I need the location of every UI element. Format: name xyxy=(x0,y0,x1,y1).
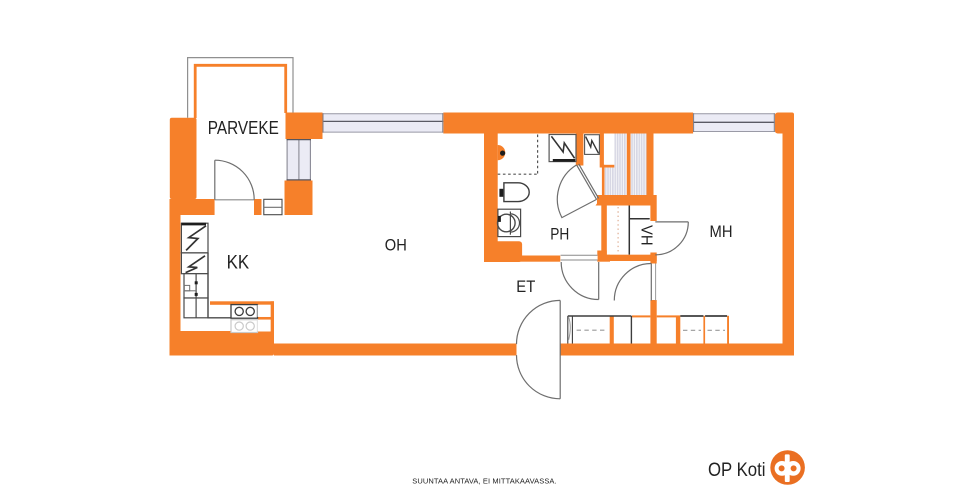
svg-text:MH: MH xyxy=(710,223,733,241)
svg-text:PH: PH xyxy=(550,225,569,243)
svg-text:OH: OH xyxy=(385,237,407,255)
svg-text:KK: KK xyxy=(227,253,250,274)
svg-text:ET: ET xyxy=(516,278,535,296)
svg-text:VH: VH xyxy=(638,225,655,246)
svg-text:OP Koti: OP Koti xyxy=(708,459,766,481)
svg-text:PARVEKE: PARVEKE xyxy=(208,117,279,138)
svg-text:SUUNTAA ANTAVA, EI MITTAKAAVAS: SUUNTAA ANTAVA, EI MITTAKAAVASSA. xyxy=(412,477,556,486)
